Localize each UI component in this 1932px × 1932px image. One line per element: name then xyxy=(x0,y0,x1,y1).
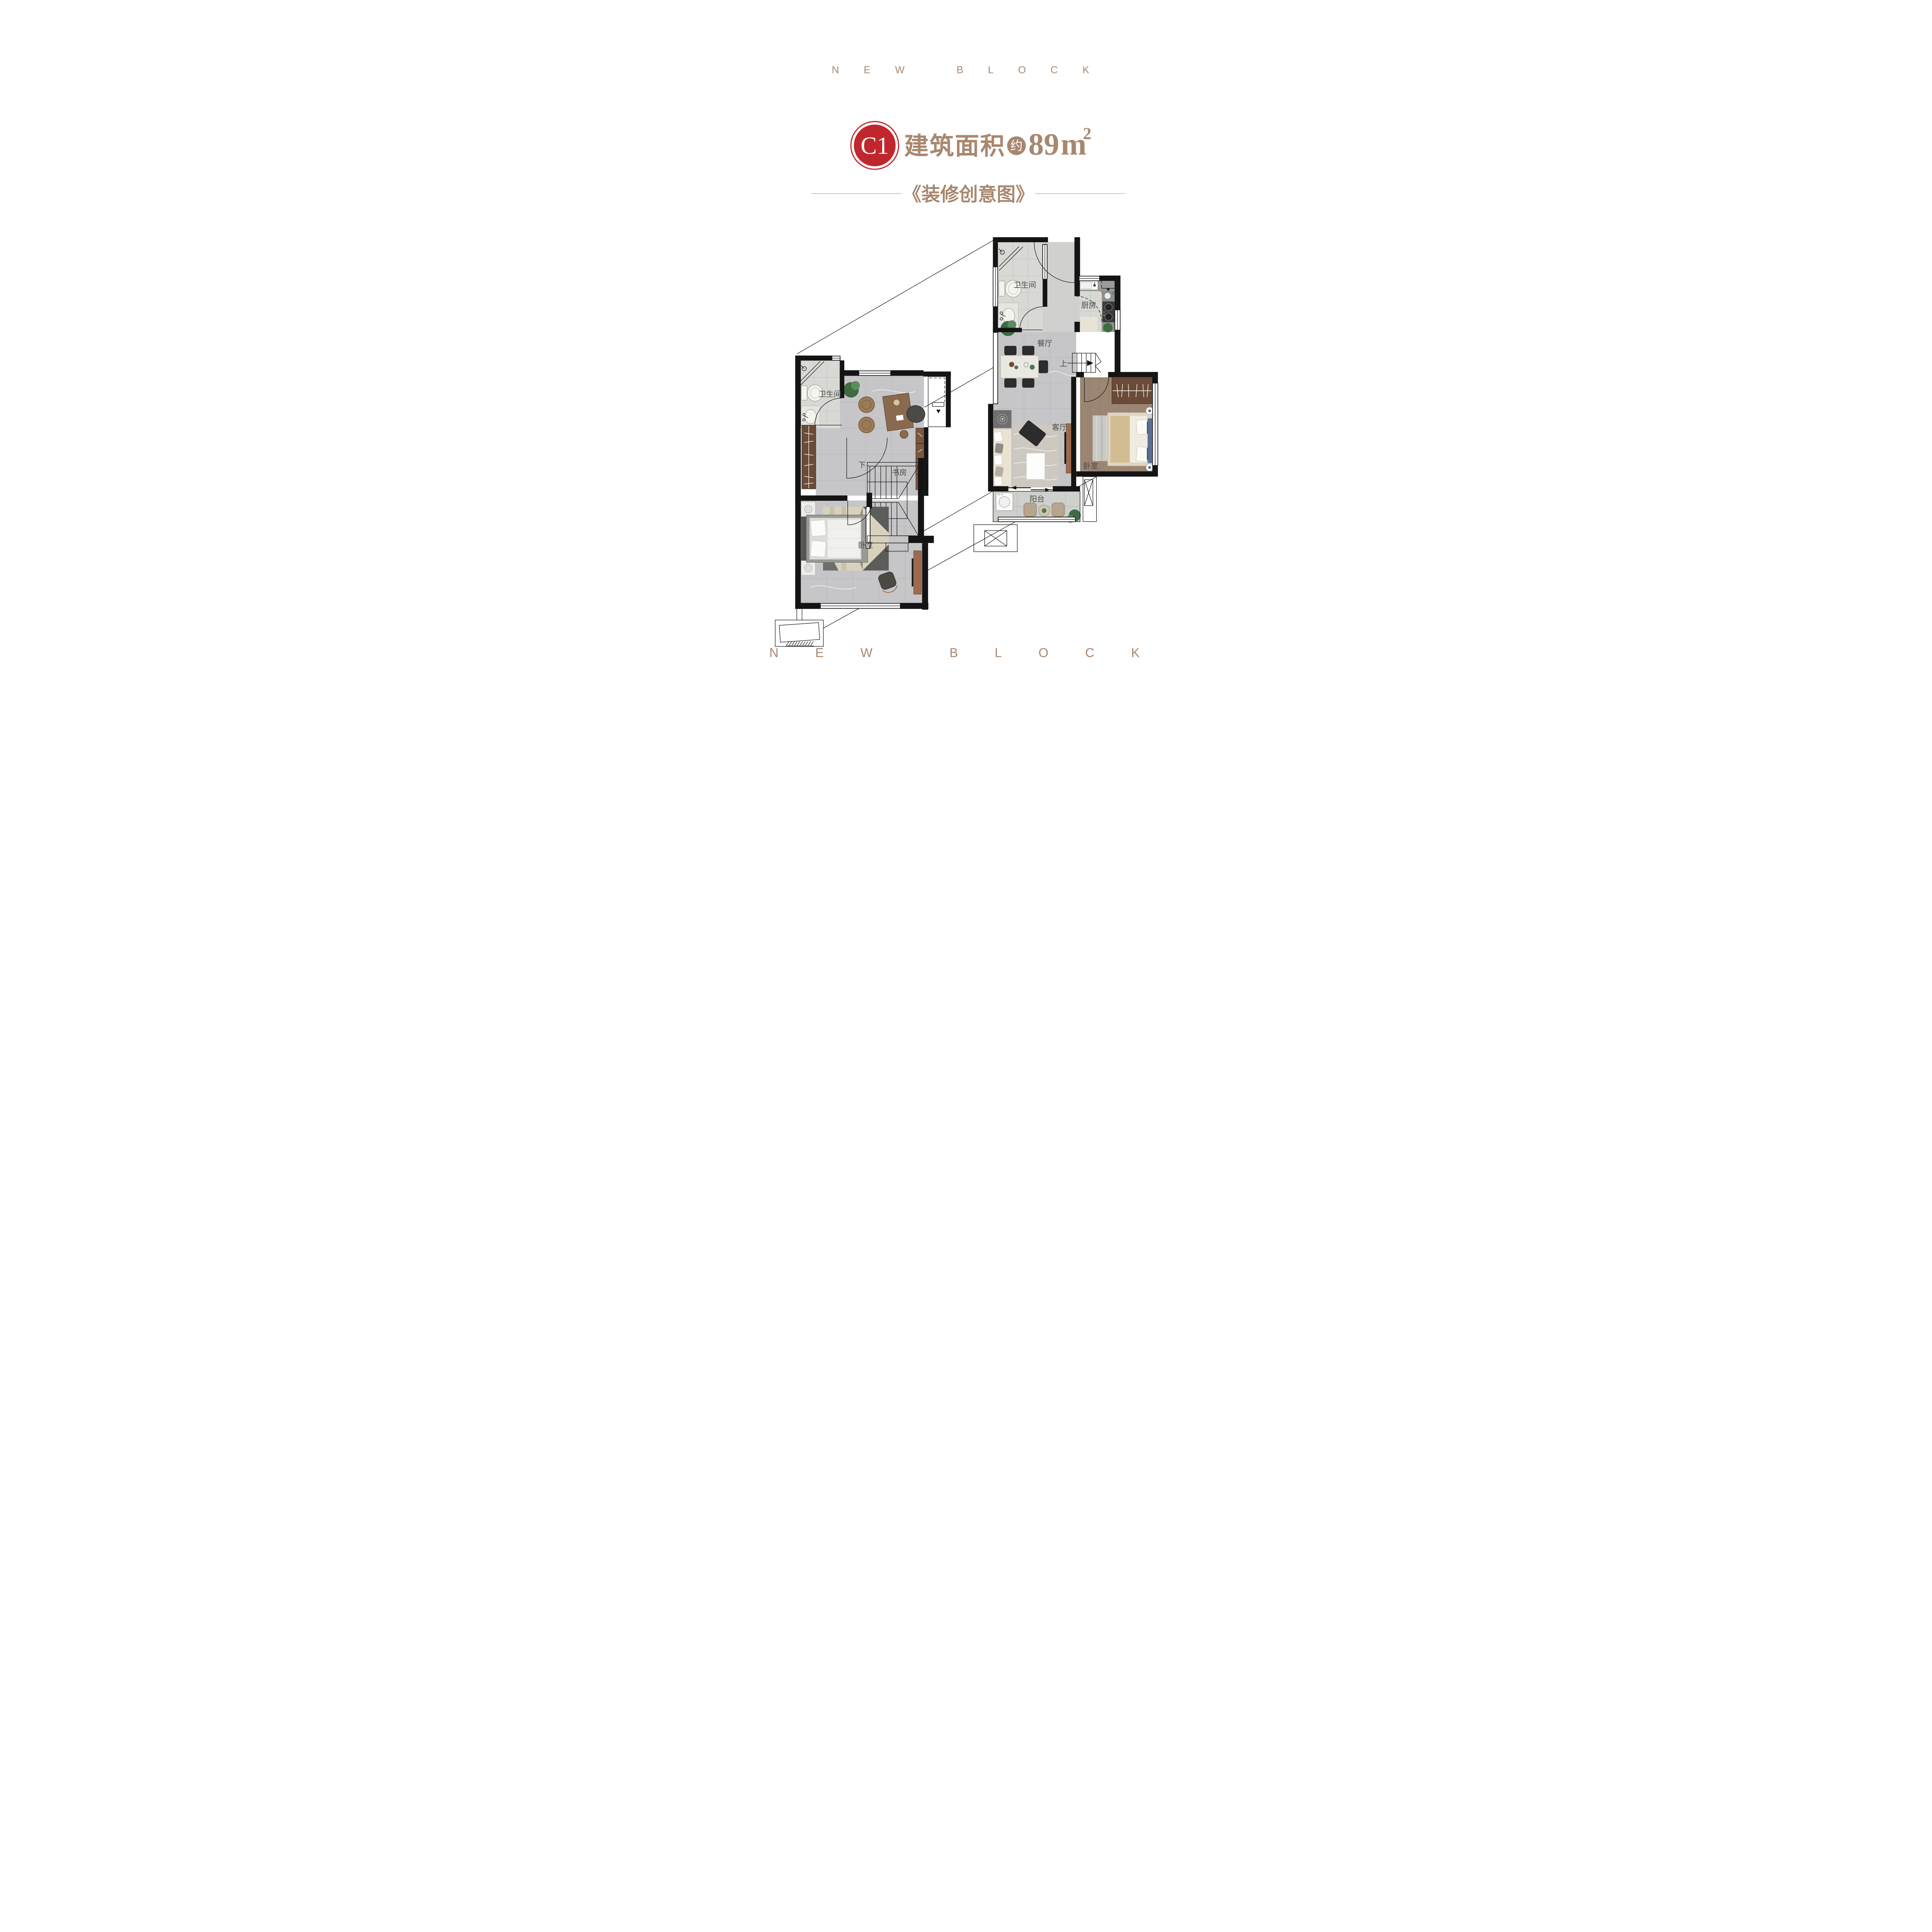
subtitle-text: 《装修创意图》 xyxy=(903,184,1034,205)
f2-bedroom-window xyxy=(820,604,900,609)
f1-dining-left-wall xyxy=(993,332,998,404)
f1-kitchen-mat xyxy=(1080,317,1097,332)
area-unit-sup: 2 xyxy=(1083,124,1092,143)
f1-bathroom-label: 卫生间 xyxy=(1014,281,1036,289)
f2-ac-hatch xyxy=(786,641,814,646)
f1-kitchen-sink-icon xyxy=(1078,281,1098,290)
f2-wardrobe xyxy=(802,425,816,489)
f2-top-window xyxy=(832,356,840,360)
brand-bottom: NEW BLOCK xyxy=(769,645,1176,660)
approx-badge: 约 xyxy=(1007,136,1026,155)
f2-study-window xyxy=(859,371,891,376)
f1-balcony-seating xyxy=(1024,503,1065,517)
f1-stairs-up xyxy=(1067,353,1101,372)
f1-plate-icon xyxy=(1104,293,1111,299)
f2-stairs-down-label: 下 xyxy=(858,461,866,469)
f1-bedroom-label: 卧室 xyxy=(1083,462,1098,471)
f1-wardrobe xyxy=(1112,378,1153,404)
f1-balcony-label: 阳台 xyxy=(1029,495,1044,503)
f1-kitchen-plant xyxy=(1103,323,1112,332)
f2-bedroom-label: 卧室 xyxy=(858,541,873,549)
area-unit: m xyxy=(1061,128,1087,162)
f1-bath-left-window xyxy=(993,267,998,307)
f1-coffee-table xyxy=(1026,453,1045,480)
f1-sofa xyxy=(993,429,1012,487)
f2-study-label: 书房 xyxy=(892,469,907,477)
f1-utility-shaft xyxy=(1083,476,1097,521)
floor2-plan: 卫生间 书房 卧室 下 xyxy=(775,355,951,646)
f1-bedroom-right-window xyxy=(1153,383,1158,465)
badge-label: C1 xyxy=(861,132,889,159)
f2-bathroom-label: 卫生间 xyxy=(819,390,842,398)
f2-ac-platform xyxy=(775,609,823,646)
floorplan-canvas: NEW BLOCK C1 建筑面积 约 89 m 2 《装修创意图》 xyxy=(723,0,1209,700)
f1-kitchen-right-window xyxy=(1115,310,1120,330)
f1-ac-platform xyxy=(974,525,1017,552)
brand-top: NEW BLOCK xyxy=(832,64,1114,76)
f1-stove-icon xyxy=(1102,301,1115,322)
f1-stairs-arrow xyxy=(1087,360,1094,366)
f1-kitchen-top-window xyxy=(1079,276,1100,281)
area-label: 建筑面积 xyxy=(904,133,1005,160)
f1-bed xyxy=(1107,407,1153,471)
f1-living-label: 客厅 xyxy=(1052,423,1067,432)
f1-dining-label: 餐厅 xyxy=(1037,339,1052,348)
f1-washing-machine xyxy=(996,493,1013,510)
floor1-plan: 卫生间 厨房 餐厅 客厅 卧室 阳台 上 xyxy=(974,237,1158,552)
f2-bay-window xyxy=(928,376,946,427)
unit-badge: C1 xyxy=(851,122,899,170)
area-value: 89 xyxy=(1028,128,1059,162)
f1-balcony-window xyxy=(998,517,1075,522)
f2-globe-icon xyxy=(900,430,908,438)
f2-sink-icon xyxy=(801,406,820,427)
approx-label: 约 xyxy=(1010,139,1023,153)
poster-page: NEW BLOCK C1 建筑面积 约 89 m 2 《装修创意图》 xyxy=(723,0,1209,700)
f1-stairs-up-label: 上 xyxy=(1060,360,1067,368)
f1-entry-side-window xyxy=(1043,245,1047,279)
f1-kitchen-label: 厨房 xyxy=(1081,301,1096,310)
f2-bed xyxy=(801,515,868,563)
f1-speaker-table xyxy=(993,410,1011,428)
